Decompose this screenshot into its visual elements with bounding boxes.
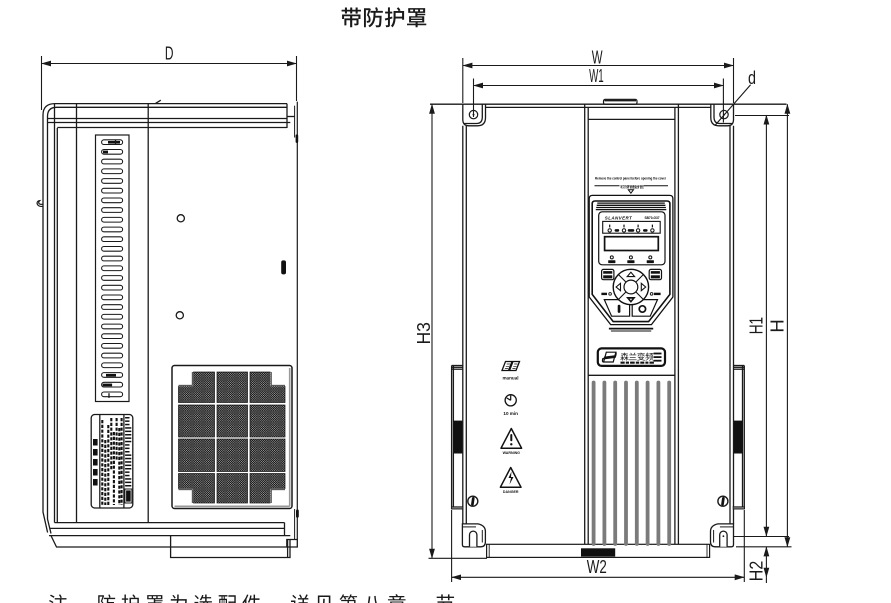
svg-text:DANGER: DANGER bbox=[503, 490, 519, 494]
svg-text:SB70-G37: SB70-G37 bbox=[645, 216, 660, 220]
svg-text:manual: manual bbox=[502, 376, 518, 381]
svg-text:H2: H2 bbox=[747, 561, 767, 581]
svg-text:H1: H1 bbox=[747, 317, 767, 334]
svg-text:Remove the control panel befor: Remove the control panel before opening … bbox=[595, 176, 666, 180]
svg-text:W2: W2 bbox=[587, 557, 607, 577]
svg-text:H: H bbox=[767, 319, 787, 332]
svg-text:W: W bbox=[592, 47, 603, 67]
svg-text:WARNING: WARNING bbox=[503, 451, 521, 455]
svg-text:SLANVERT: SLANVERT bbox=[605, 215, 633, 220]
svg-text:D: D bbox=[165, 44, 174, 64]
svg-text:W1: W1 bbox=[589, 66, 604, 86]
svg-text:10 min: 10 min bbox=[503, 411, 518, 416]
svg-text:d: d bbox=[748, 68, 756, 88]
svg-text:H3: H3 bbox=[414, 322, 434, 345]
